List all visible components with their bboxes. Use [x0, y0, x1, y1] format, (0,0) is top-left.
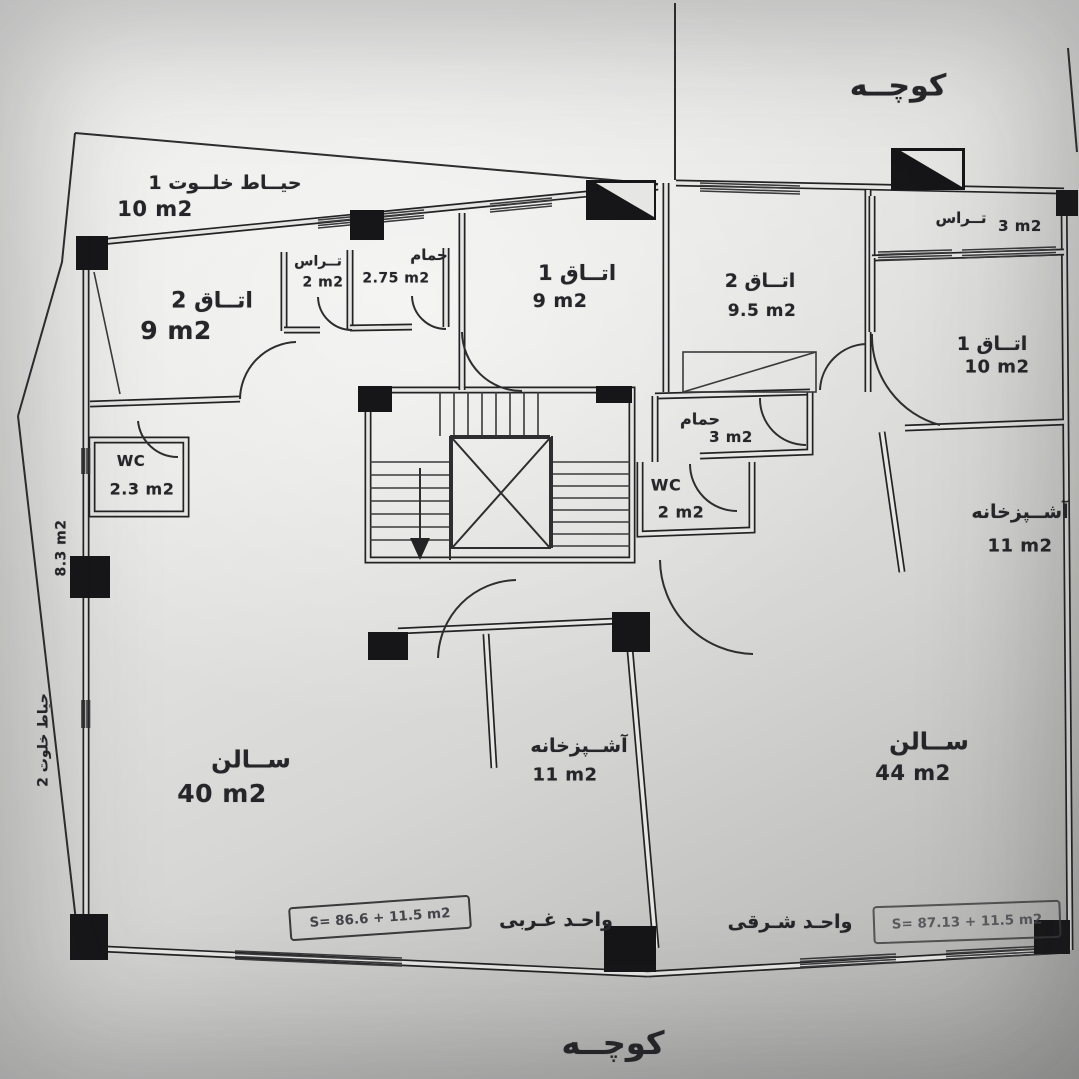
room-label-west-terrace: تــراس: [294, 255, 342, 270]
staircase: [370, 392, 630, 560]
room-label-east-kitchen: آشــپزخانه: [971, 503, 1068, 523]
elevator-shaft: [452, 438, 550, 548]
area-label-east-room2: 9.5 m2: [728, 303, 797, 321]
area-formula-box-east: S= 87.13 + 11.5 m2: [872, 900, 1061, 945]
area-label-west-wc: 2.3 m2: [110, 482, 175, 499]
area-label-east-salon: 44 m2: [875, 762, 951, 784]
room-label-center-kitchen: آشــپزخانه: [530, 737, 627, 757]
room-label-east-terrace: تــراس: [935, 211, 986, 227]
area-label-left-strip: 8.3 m2: [55, 519, 70, 576]
door-arcs: [138, 296, 940, 658]
floorplan-photo: کوچــه حیــاط خلــوت 1 10 m2 اتــاق 2 9 …: [0, 0, 1079, 1079]
area-label-west-salon: 40 m2: [177, 781, 266, 807]
area-label-center-kitchen: 11 m2: [532, 767, 597, 786]
room-label-east-room2: اتــاق 2: [725, 272, 796, 292]
room-label-west-wc: WC: [117, 454, 146, 470]
area-label-east-terrace: 3 m2: [998, 219, 1042, 235]
plot-boundary-lines: [18, 3, 1077, 956]
unit-label-east: واحـد شـرقی: [728, 913, 853, 933]
area-label-west-terrace: 2 m2: [303, 276, 344, 291]
room-label-left-strip: حیاط خلوت 2: [37, 693, 52, 787]
street-label-bottom: کوچــه: [561, 1027, 664, 1061]
room-label-west-room1: اتــاق 1: [538, 262, 616, 284]
room-label-west-salon: ســالن: [211, 747, 291, 772]
unit-label-west: واحـد غـربی: [499, 911, 613, 931]
area-label-east-kitchen: 11 m2: [987, 538, 1052, 557]
area-label-east-bath: 3 m2: [709, 430, 753, 446]
room-label-east-room1: اتــاق 1: [957, 335, 1028, 355]
area-label-west-bath: 2.75 m2: [362, 272, 429, 287]
room-label-west-bath: حمام: [410, 248, 448, 264]
room-label-west-yard: حیــاط خلــوت 1: [148, 174, 301, 194]
area-label-west-room2: 9 m2: [140, 318, 212, 344]
street-label-top: کوچــه: [850, 70, 947, 102]
room-label-east-salon: ســالن: [889, 729, 969, 754]
room-label-east-wc: WC: [651, 478, 681, 495]
area-label-west-room1: 9 m2: [533, 292, 588, 312]
area-label-east-wc: 2 m2: [658, 505, 705, 522]
area-formula-west: S= 86.6 + 11.5 m2: [309, 905, 451, 931]
room-label-west-room2: اتــاق 2: [171, 289, 253, 312]
area-label-east-room1: 10 m2: [964, 359, 1029, 378]
area-formula-east: S= 87.13 + 11.5 m2: [891, 911, 1042, 932]
area-label-west-yard: 10 m2: [117, 198, 193, 220]
room-label-east-bath: حمام: [680, 412, 720, 429]
